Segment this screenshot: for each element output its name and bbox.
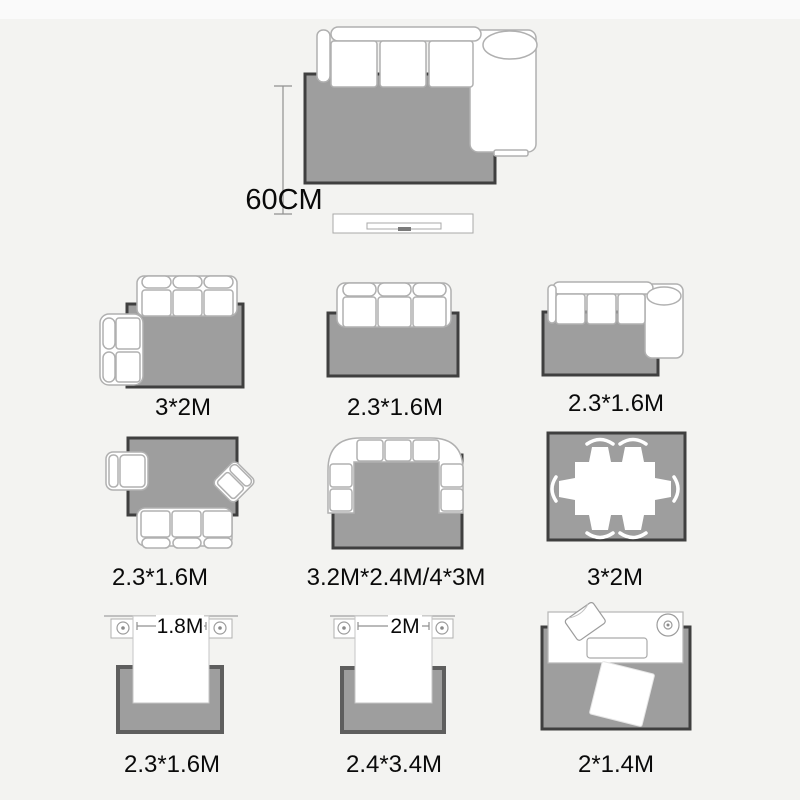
nightstand-icon xyxy=(334,619,355,638)
seat-cushion xyxy=(618,294,645,324)
chaise-pillow xyxy=(483,31,537,59)
armchair-icon xyxy=(106,452,148,490)
lamp-icon xyxy=(218,626,222,630)
loveseat-icon xyxy=(100,314,143,385)
back-cushion xyxy=(385,440,411,461)
seat-cushion xyxy=(173,290,202,316)
dining-chair xyxy=(589,515,611,530)
three-seat-sofa-icon xyxy=(337,283,451,327)
back-bolster xyxy=(142,538,170,548)
keyboard-icon xyxy=(587,638,647,658)
arm-cushion xyxy=(441,489,463,511)
seat-cushion xyxy=(120,455,145,487)
seat-cushion xyxy=(378,297,411,327)
back-bolster xyxy=(173,538,201,548)
seat-cushion xyxy=(142,290,171,316)
dining-table xyxy=(575,462,655,515)
bed-width-label: 2M xyxy=(390,615,419,638)
seat-cushion xyxy=(331,41,377,87)
chaise-foot xyxy=(494,150,528,156)
seat-cushion xyxy=(380,41,426,87)
size-label: 2.3*1.6M xyxy=(112,564,208,591)
left-armrest xyxy=(317,30,330,82)
dining-chair xyxy=(589,447,611,462)
back-bolster xyxy=(553,282,653,294)
seat-cushion xyxy=(116,352,140,382)
size-label: 3.2M*2.4M/4*3M xyxy=(307,564,486,591)
cell-living-u-shaped-sectional: 3.2M*2.4M/4*3M xyxy=(307,438,486,591)
top-strip xyxy=(0,0,800,19)
dining-chair xyxy=(622,447,644,462)
dimension-label: 60CM xyxy=(245,184,322,216)
seat-cushion xyxy=(204,290,233,316)
size-label: 3*2M xyxy=(155,394,211,421)
lamp-dot xyxy=(667,624,670,627)
seat-cushion xyxy=(556,294,585,324)
cell-dining-table-six-chairs: 3*2M xyxy=(548,433,685,591)
back-bolster xyxy=(343,283,376,296)
left-armrest xyxy=(548,285,556,323)
size-label: 2.3*1.6M xyxy=(568,390,664,417)
back-bolster xyxy=(103,318,115,349)
cell-living-three-seat-sofa: 2.3*1.6M xyxy=(328,283,458,421)
back-cushion xyxy=(413,440,439,461)
rug-size-guide-canvas: 60CM 3*2M xyxy=(0,0,800,800)
back-bolster xyxy=(173,276,202,288)
hero-diagram: 60CM xyxy=(245,27,537,233)
seat-cushion xyxy=(116,318,140,349)
lamp-icon xyxy=(121,626,125,630)
bed-width-label: 1.8M xyxy=(157,615,204,638)
back-bolster xyxy=(331,27,481,41)
seat-cushion xyxy=(172,511,201,537)
back-bolster xyxy=(378,283,411,296)
rug-size-guide-image: 60CM 3*2M xyxy=(0,0,800,800)
back-bolster xyxy=(413,283,446,296)
cell-living-sofa-with-loveseat: 3*2M xyxy=(100,276,243,421)
seat-cushion xyxy=(343,297,376,327)
arm-cushion xyxy=(441,464,463,487)
cell-desk-with-seat: 2*1.4M xyxy=(542,601,690,778)
dining-chair xyxy=(559,478,575,500)
seat-cushion xyxy=(413,297,446,327)
nightstand-icon xyxy=(208,619,232,638)
tv-console-icon xyxy=(333,214,473,233)
chaise-pillow xyxy=(647,287,681,305)
arm-cushion xyxy=(330,464,352,487)
back-bolster xyxy=(109,455,118,487)
arm-cushion xyxy=(330,489,352,511)
lamp-icon xyxy=(342,626,346,630)
tv-base xyxy=(398,227,411,231)
nightstand-icon xyxy=(111,619,135,638)
back-bolster xyxy=(204,276,233,288)
dining-chair xyxy=(655,478,671,500)
rug xyxy=(305,74,495,183)
size-label: 2.3*1.6M xyxy=(347,394,443,421)
seat-cushion xyxy=(587,294,616,324)
cell-bedroom-bed-2m: 2M 2.4*3.4M xyxy=(330,615,455,778)
size-label: 2.3*1.6M xyxy=(124,751,220,778)
dining-chair xyxy=(622,515,644,530)
three-seat-sofa-icon xyxy=(137,508,232,548)
seat-cushion xyxy=(141,511,170,537)
back-bolster xyxy=(142,276,171,288)
size-label: 2*1.4M xyxy=(578,751,654,778)
seat-cushion xyxy=(203,511,232,537)
cell-living-sofa-two-armchairs: 2.3*1.6M xyxy=(106,438,256,591)
cell-bedroom-bed-1-8m: 1.8M 2.3*1.6M xyxy=(104,615,238,778)
back-bolster xyxy=(103,352,115,382)
back-cushion xyxy=(357,440,383,461)
lamp-icon xyxy=(440,626,444,630)
size-label: 2.4*3.4M xyxy=(346,751,442,778)
nightstand-icon xyxy=(432,619,453,638)
back-bolster xyxy=(204,538,232,548)
seat-cushion xyxy=(429,41,473,87)
three-seat-sofa-icon xyxy=(137,276,237,316)
size-label: 3*2M xyxy=(587,564,643,591)
cell-living-chaise-sectional: 2.3*1.6M xyxy=(543,282,683,417)
